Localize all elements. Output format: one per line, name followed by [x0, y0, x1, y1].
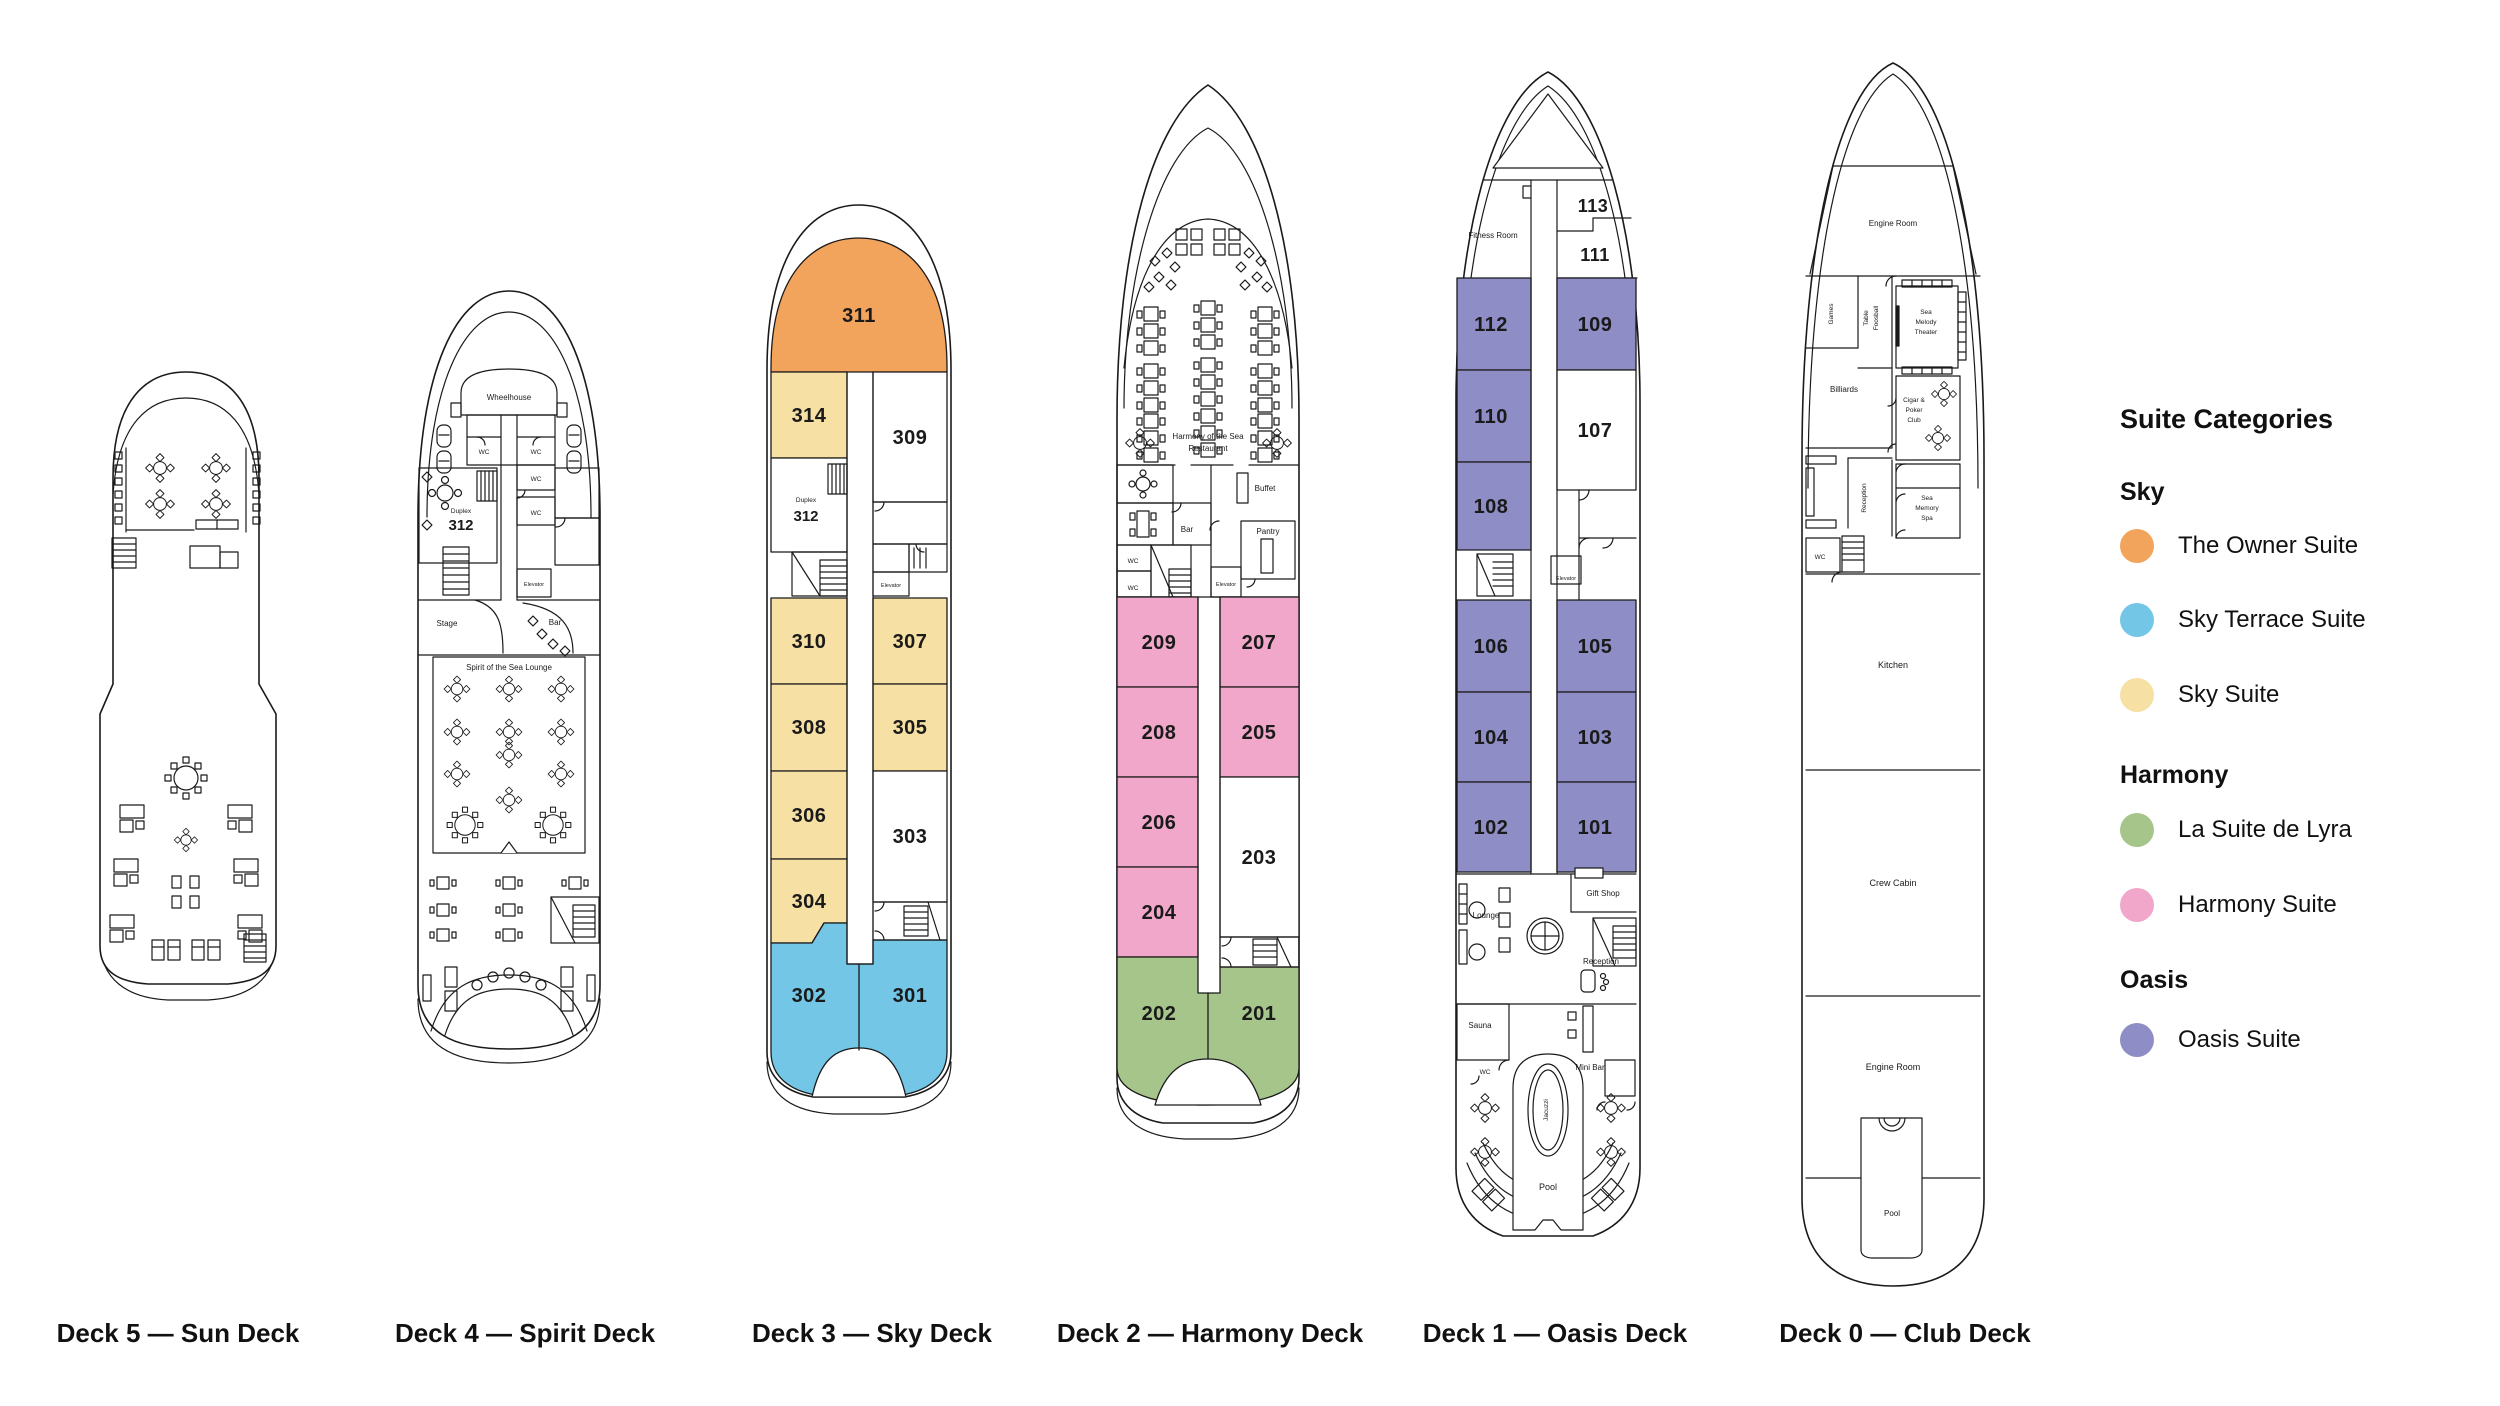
pool — [1861, 1118, 1922, 1258]
cabin-110-number: 110 — [1474, 406, 1508, 428]
legend-group-harmony: Harmony — [2120, 761, 2228, 790]
legend-item-oasis-suite: Oasis Suite — [2120, 1023, 2301, 1057]
pool-complex — [1513, 1054, 1583, 1230]
cabin-304-number: 304 — [792, 891, 827, 913]
theater-label: Melody — [1916, 319, 1938, 326]
cabin-104-number: 104 — [1474, 727, 1509, 749]
cabin-207-number: 207 — [1242, 632, 1277, 654]
duplex-label: Duplex — [451, 508, 472, 515]
deck-2-label: Deck 2 — Harmony Deck — [1057, 1318, 1363, 1349]
wc-label: WC — [531, 449, 542, 456]
cabin-111-number: 111 — [1580, 245, 1610, 265]
crew-cabin-label: Crew Cabin — [1869, 878, 1916, 888]
cabin-105-number: 105 — [1578, 636, 1613, 658]
jacuzzi-label: Jacuzzi — [1543, 1099, 1550, 1121]
theater-label: Sea — [1920, 309, 1932, 316]
cabin-308-number: 308 — [792, 717, 827, 739]
deck-1-plan: Fitness Room 113 111 112 109 110 107 108… — [1453, 68, 1643, 1283]
cabin-202-number: 202 — [1142, 1003, 1177, 1025]
wc-label: WC — [1128, 558, 1139, 565]
wc-label: WC — [1480, 1069, 1491, 1076]
cabin-108-number: 108 — [1474, 496, 1509, 518]
cabin-302-number: 302 — [792, 985, 827, 1007]
reception-label: Reception — [1861, 483, 1868, 513]
pool-deck — [1513, 1054, 1583, 1230]
cabin-102-number: 102 — [1474, 817, 1509, 839]
duplex-label: Duplex — [796, 497, 817, 504]
wc-label: WC — [1128, 585, 1139, 592]
cabin-101-number: 101 — [1578, 817, 1613, 839]
cabin-109-number: 109 — [1578, 314, 1613, 336]
legend-item-sky-suite: Sky Suite — [2120, 678, 2279, 712]
elevator-label: Elevator — [881, 583, 901, 589]
spa-label: Spa — [1921, 515, 1933, 522]
kitchen-label: Kitchen — [1878, 660, 1908, 670]
legend-item-harmony-suite: Harmony Suite — [2120, 888, 2337, 922]
restaurant-label: Restaurant — [1188, 444, 1228, 453]
deck-3-label: Deck 3 — Sky Deck — [752, 1318, 992, 1349]
sky-terrace-swatch-icon — [2120, 603, 2154, 637]
wc-label: WC — [479, 449, 490, 456]
mini-bar-label: Mini Bar — [1575, 1063, 1605, 1072]
wc-label: WC — [531, 510, 542, 517]
deck-3-plan: 311 314 309 Duplex 312 Elevator 310 307 … — [764, 200, 954, 1115]
deck-0-plan: Engine Room Games Table Foosball Sea Mel… — [1798, 58, 1988, 1293]
games-label: Games — [1828, 303, 1835, 325]
legend-item-the-owner-suite: The Owner Suite — [2120, 529, 2358, 563]
deck-0-label: Deck 0 — Club Deck — [1779, 1318, 2030, 1349]
lyra-suite-swatch-icon — [2120, 813, 2154, 847]
cabin-107-number: 107 — [1578, 420, 1613, 442]
cabin-209-number: 209 — [1142, 632, 1177, 654]
cabin-204-number: 204 — [1142, 902, 1177, 924]
cigar-club-label: Poker — [1906, 407, 1924, 414]
spa-label: Sea — [1921, 495, 1933, 502]
cabin-201-number: 201 — [1242, 1003, 1277, 1025]
cigar-club-label: Club — [1907, 417, 1921, 424]
legend-group-sky: Sky — [2120, 478, 2164, 507]
deck-5-label: Deck 5 — Sun Deck — [57, 1318, 300, 1349]
cabin-307-number: 307 — [893, 631, 928, 653]
cabin-106-number: 106 — [1474, 636, 1509, 658]
deck-4-label: Deck 4 — Spirit Deck — [395, 1318, 655, 1349]
foosball-label: Table — [1863, 310, 1870, 326]
cabin-205-number: 205 — [1242, 722, 1277, 744]
deck-plan-canvas: Wheelhouse WC WC WC WC Duplex 312 Elevat… — [0, 0, 2500, 1406]
cabin-310-number: 310 — [792, 631, 827, 653]
hull-outline — [1802, 63, 1984, 1286]
cabin-309-number: 309 — [893, 427, 928, 449]
stage-bar — [1896, 306, 1899, 346]
legend-item-la-suite-de-lyra: La Suite de Lyra — [2120, 813, 2352, 847]
legend-group-oasis: Oasis — [2120, 966, 2188, 995]
foosball-label: Foosball — [1873, 305, 1880, 330]
cabin-301-number: 301 — [893, 985, 928, 1007]
cabin-203-number: 203 — [1242, 847, 1277, 869]
sky-suite-swatch-icon — [2120, 678, 2154, 712]
fitness-room-label: Fitness Room — [1468, 231, 1518, 240]
pantry-label: Pantry — [1256, 527, 1279, 536]
pool-label: Pool — [1539, 1182, 1557, 1192]
cabin-206-number: 206 — [1142, 812, 1177, 834]
reception-label: Reception — [1583, 957, 1619, 966]
wheelhouse-label: Wheelhouse — [487, 393, 532, 402]
legend-title: Suite Categories — [2120, 404, 2333, 435]
legend-item-sky-terrace-suite: Sky Terrace Suite — [2120, 603, 2366, 637]
cabin-306-number: 306 — [792, 805, 827, 827]
engine-room-label: Engine Room — [1869, 219, 1918, 228]
cabin-303-number: 303 — [893, 826, 928, 848]
engine-room-lower-label: Engine Room — [1866, 1062, 1921, 1072]
cabin-208-number: 208 — [1142, 722, 1177, 744]
suite-categories-legend: Suite Categories Sky The Owner Suite Sky… — [2120, 404, 2490, 1084]
elevator-label: Elevator — [1556, 576, 1576, 582]
cabin-312-number: 312 — [448, 517, 473, 534]
cabin-112-number: 112 — [1474, 314, 1508, 336]
wc-label: WC — [531, 476, 542, 483]
buffet-label: Buffet — [1255, 484, 1277, 493]
lounge-label: Spirit of the Sea Lounge — [466, 663, 552, 672]
deck-2-plan: Harmony of the Sea Restaurant Bar Buffet… — [1115, 73, 1301, 1165]
elevator-label: Elevator — [524, 582, 544, 588]
theater-label: Theater — [1915, 329, 1938, 336]
stage-label: Stage — [437, 619, 458, 628]
cabin-311-number: 311 — [842, 305, 876, 327]
wc-label: WC — [1815, 554, 1826, 561]
lounge-label: Lounge — [1473, 911, 1500, 920]
restaurant-label: Harmony of the Sea — [1172, 432, 1244, 441]
cigar-club-label: Cigar & — [1903, 397, 1925, 404]
deck-4-plan: Wheelhouse WC WC WC WC Duplex 312 Elevat… — [415, 285, 603, 1120]
cabin-103-number: 103 — [1578, 727, 1613, 749]
pool-label: Pool — [1884, 1209, 1900, 1218]
cabin-305-number: 305 — [893, 717, 928, 739]
deck-5-plan — [98, 368, 278, 1003]
porthole — [1527, 918, 1563, 954]
owner-suite-swatch-icon — [2120, 529, 2154, 563]
billiards-label: Billiards — [1830, 385, 1858, 394]
harmony-suite-swatch-icon — [2120, 888, 2154, 922]
oasis-suite-swatch-icon — [2120, 1023, 2154, 1057]
sauna-label: Sauna — [1468, 1021, 1492, 1030]
spa-label: Memory — [1915, 505, 1939, 512]
bar-label: Bar — [1181, 525, 1194, 534]
gift-shop-label: Gift Shop — [1586, 889, 1620, 898]
elevator-label: Elevator — [1216, 582, 1236, 588]
cabin-312-number: 312 — [793, 508, 818, 525]
deck-1-label: Deck 1 — Oasis Deck — [1423, 1318, 1688, 1349]
cabin-314-number: 314 — [792, 405, 827, 427]
bar-label: Bar — [549, 618, 562, 627]
cabin-113-number: 113 — [1578, 196, 1609, 216]
